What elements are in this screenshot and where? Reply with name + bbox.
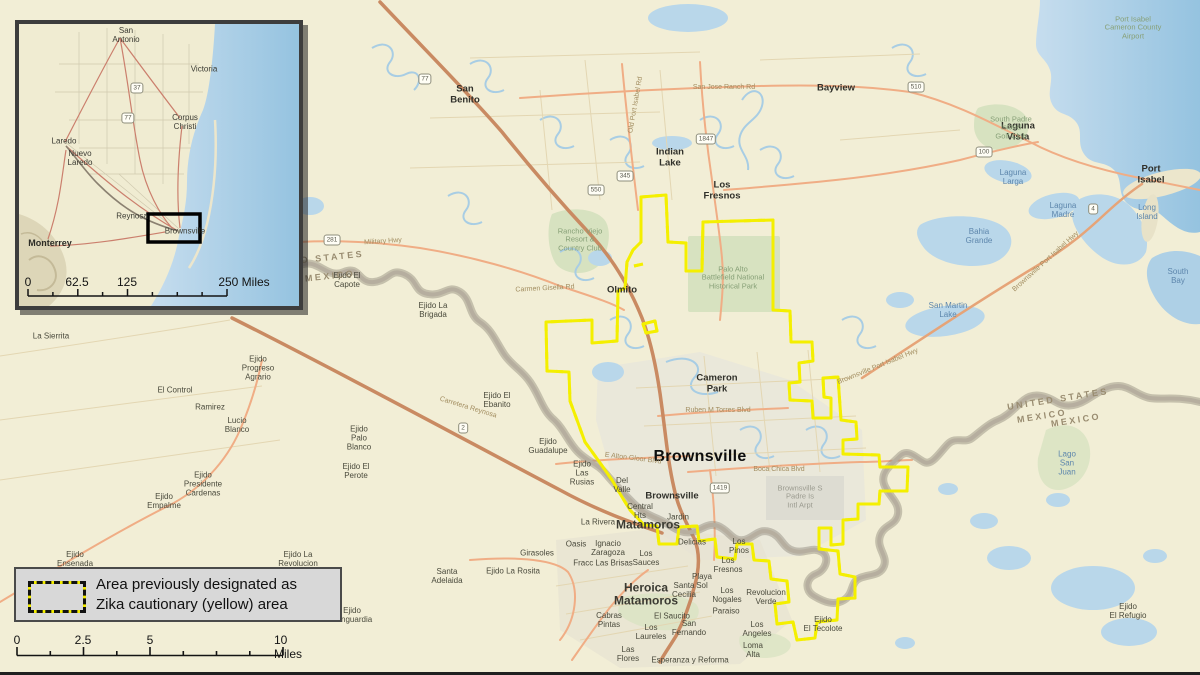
route-shield: 37 <box>130 83 143 94</box>
inset-label: Brownsville <box>165 228 205 237</box>
inset-label: Laredo <box>52 138 77 147</box>
legend: Area previously designated as Zika cauti… <box>14 567 342 622</box>
legend-text: Area previously designated as Zika cauti… <box>96 575 297 616</box>
legend-line-1: Area previously designated as <box>96 575 297 595</box>
inset-scale-label: 0 <box>25 275 32 289</box>
inset-scale-label: 62.5 <box>65 275 88 289</box>
inset-label: Nuevo Laredo <box>68 150 93 168</box>
map-screenshot: BrownsvilleSan BenitoBayviewIndian LakeL… <box>0 0 1200 675</box>
scalebar-label: 2.5 <box>75 633 92 647</box>
inset-scale-labels: 062.5125250 Miles <box>19 272 299 306</box>
inset-label: Victoria <box>191 66 218 75</box>
zika-area-swatch-dash <box>28 581 86 613</box>
inset-label: Corpus Christi <box>172 114 198 132</box>
inset-label: Monterrey <box>28 238 72 248</box>
scalebar-label: 0 <box>14 633 21 647</box>
route-shield: 77 <box>121 113 134 124</box>
inset-label: Reynosa <box>116 213 148 222</box>
inset-locator-map: San AntonioVictoriaCorpus ChristiLaredoN… <box>15 20 303 310</box>
inset-scale-label: 125 <box>117 275 137 289</box>
inset-label: San Antonio <box>112 27 139 45</box>
inset-labels-layer: San AntonioVictoriaCorpus ChristiLaredoN… <box>19 24 299 306</box>
inset-scale-label: 250 Miles <box>218 275 269 289</box>
scalebar-label: 10 Miles <box>274 633 318 661</box>
main-scalebar: 02.5510 Miles <box>0 630 340 670</box>
legend-line-2: Zika cautionary (yellow) area <box>96 595 297 615</box>
scalebar-label: 5 <box>147 633 154 647</box>
zika-area-swatch <box>28 581 86 613</box>
